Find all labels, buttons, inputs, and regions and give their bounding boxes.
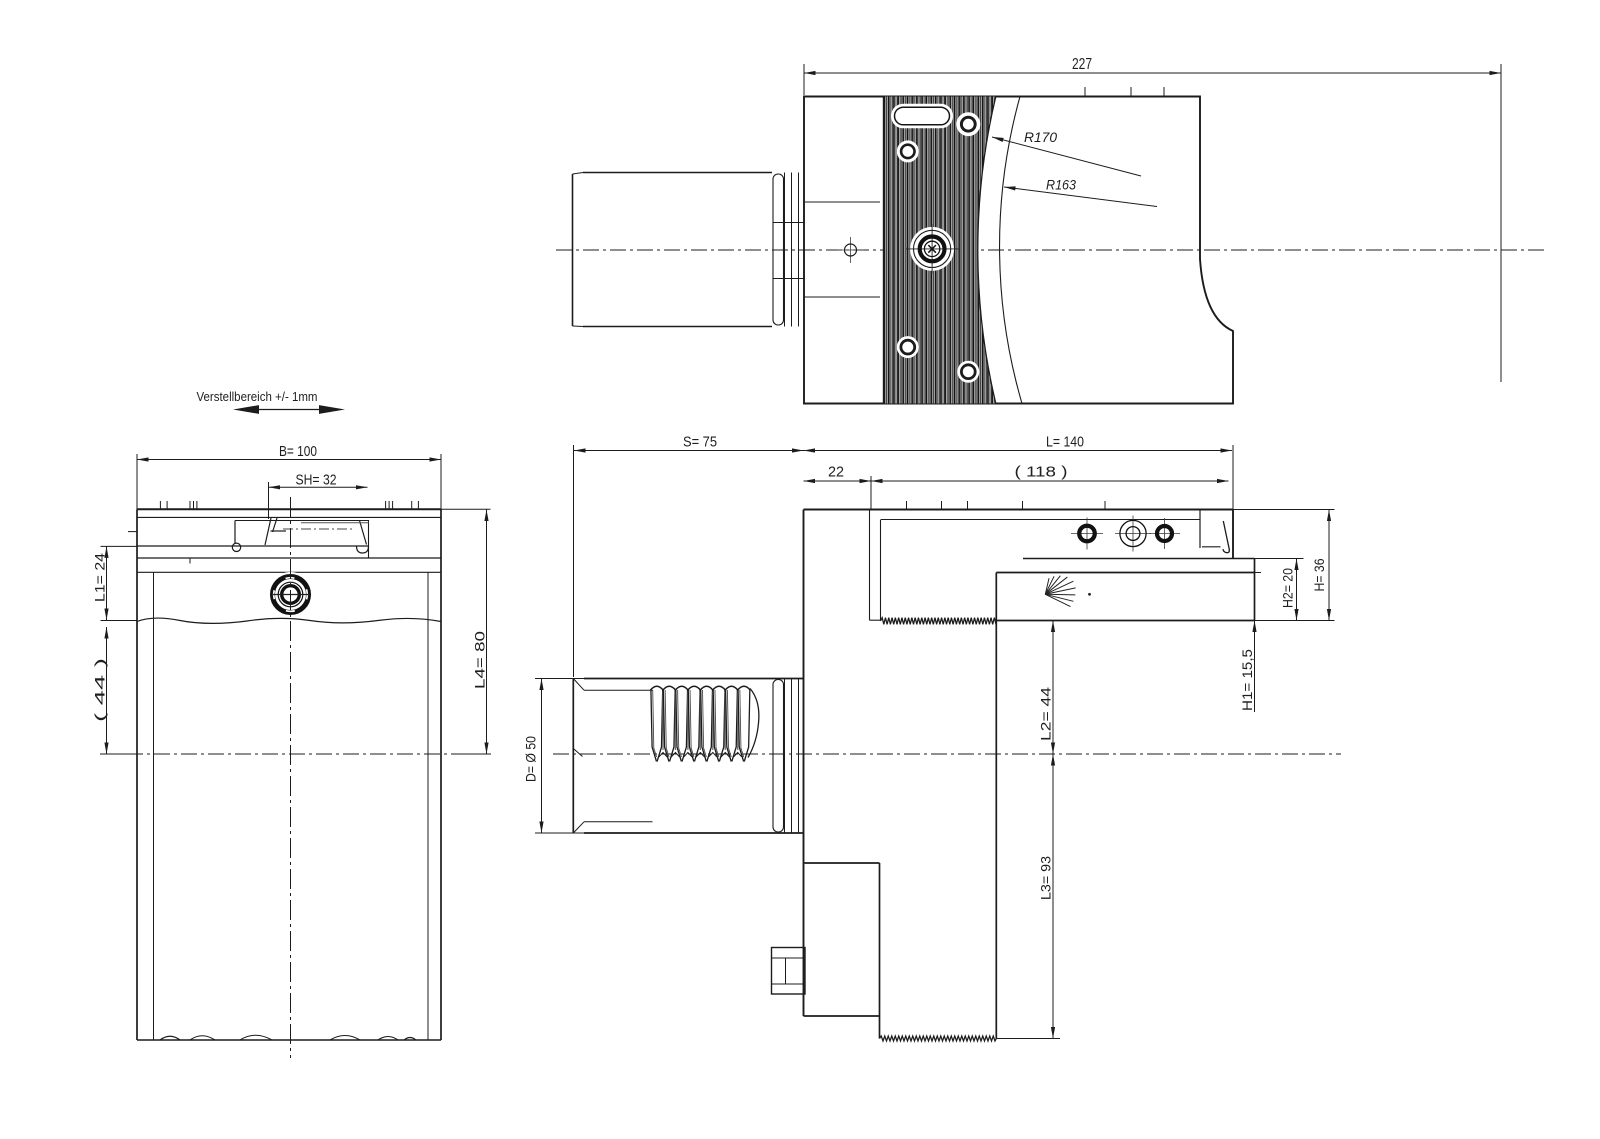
svg-text:L2= 44: L2= 44	[1039, 686, 1054, 741]
svg-text:Verstellbereich +/- 1mm: Verstellbereich +/- 1mm	[197, 389, 318, 404]
svg-text:( 118 ): ( 118 )	[1015, 464, 1068, 481]
svg-text:H1= 15,5: H1= 15,5	[1240, 649, 1255, 711]
svg-text:22: 22	[828, 464, 844, 481]
svg-text:R170: R170	[1024, 129, 1057, 145]
svg-text:S= 75: S= 75	[683, 434, 717, 451]
svg-text:SH= 32: SH= 32	[296, 472, 337, 489]
svg-text:L1= 24: L1= 24	[93, 552, 108, 602]
svg-text:L4= 80: L4= 80	[473, 631, 488, 689]
svg-text:H2= 20: H2= 20	[1281, 568, 1296, 608]
svg-text:( 44 ): ( 44 )	[93, 658, 108, 722]
svg-text:227: 227	[1072, 56, 1092, 73]
svg-text:D= Ø 50: D= Ø 50	[524, 736, 539, 782]
svg-text:B= 100: B= 100	[279, 443, 317, 460]
svg-text:L= 140: L= 140	[1046, 434, 1084, 451]
svg-text:L3= 93: L3= 93	[1039, 856, 1054, 900]
svg-text:H= 36: H= 36	[1312, 559, 1327, 592]
svg-text:R163: R163	[1046, 177, 1076, 193]
